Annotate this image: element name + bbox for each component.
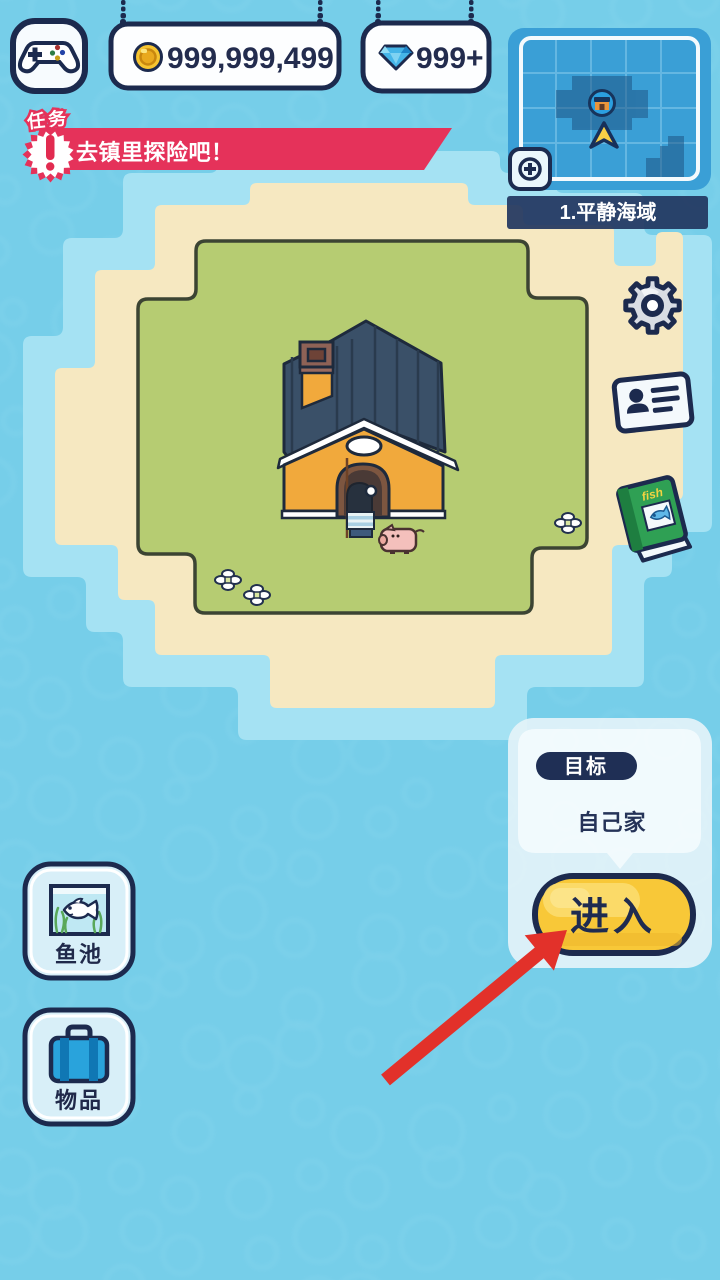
svg-text:去镇里探险吧！: 去镇里探险吧！ [76,140,234,165]
svg-text:1.平静海域: 1.平静海域 [560,200,657,224]
svg-text:999+: 999+ [416,42,484,75]
svg-text:目标: 目标 [564,755,608,778]
svg-text:鱼池: 鱼池 [55,942,103,967]
svg-text:任务: 任务 [25,107,70,132]
svg-text:999,999,499: 999,999,499 [167,42,334,75]
svg-text:物品: 物品 [55,1088,103,1113]
svg-text:进入: 进入 [570,896,656,939]
svg-text:自己家: 自己家 [577,810,646,835]
